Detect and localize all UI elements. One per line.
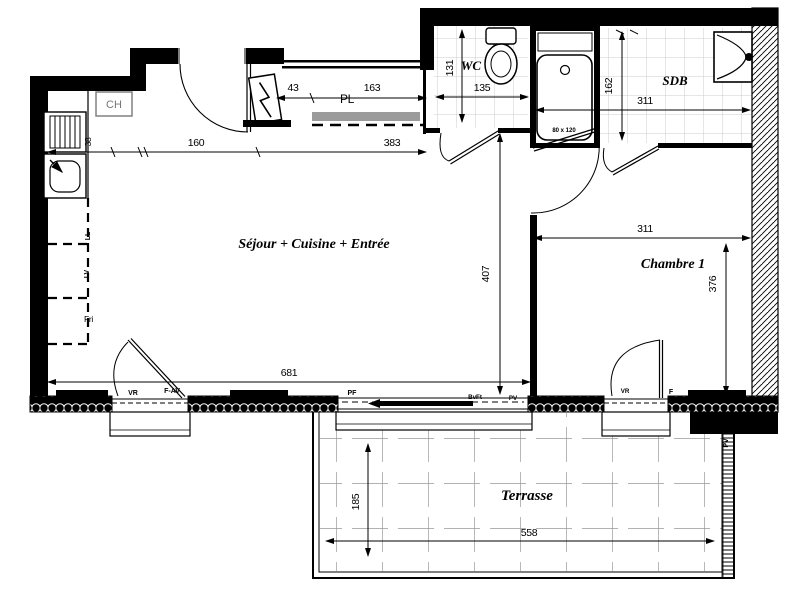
shower-top-wall bbox=[530, 26, 600, 31]
dim-558: 558 bbox=[521, 527, 538, 539]
floor-plan-canvas: Terrasse PV 558 185 bbox=[0, 0, 800, 600]
top-wall bbox=[420, 8, 778, 26]
toilet bbox=[485, 28, 517, 84]
radiator-sejour-left bbox=[56, 390, 108, 397]
terrace-label: Terrasse bbox=[501, 488, 553, 504]
chambre-door-swing bbox=[531, 130, 599, 213]
dim-407: 407 bbox=[480, 265, 492, 282]
dim-162: 162 bbox=[603, 77, 615, 94]
shower-right-wall bbox=[594, 26, 600, 148]
shower: 80 x 120 bbox=[537, 33, 592, 140]
closet-shelf bbox=[312, 112, 420, 121]
window-sejour-sill bbox=[110, 412, 190, 436]
window-sejour: VR F-AV bbox=[110, 339, 190, 437]
window-bedroom-type-label: F bbox=[669, 389, 674, 396]
shower-drain bbox=[561, 66, 570, 75]
shower-shelf bbox=[538, 33, 592, 51]
wc-bottom-wall-left bbox=[426, 128, 440, 133]
washbasin bbox=[714, 32, 753, 82]
wc-block-left-wall bbox=[420, 8, 434, 70]
dim-383: 383 bbox=[384, 137, 401, 149]
window-bedroom: VR F bbox=[602, 340, 674, 436]
sliding-panel bbox=[378, 401, 473, 406]
sejour-label: Séjour + Cuisine + Entrée bbox=[238, 237, 389, 252]
kitchen-top-wall bbox=[30, 76, 132, 91]
closet-sill-dark bbox=[243, 120, 291, 127]
cooktop bbox=[44, 112, 86, 152]
party-wall-hatched bbox=[752, 8, 778, 412]
window-bedroom-shutter-label: VR bbox=[621, 388, 630, 395]
dim-chambre-depth: 376 bbox=[707, 244, 726, 394]
terrace-screen-label: PV bbox=[723, 438, 730, 448]
sdb-door bbox=[603, 146, 659, 175]
water-heater-label: CH bbox=[106, 99, 122, 111]
entry-wall-left bbox=[130, 48, 178, 64]
window-bedroom-sill bbox=[602, 412, 670, 436]
radiators bbox=[56, 390, 746, 397]
window-sejour-shutter-label: VR bbox=[128, 390, 138, 397]
chambre-label: Chambre 1 bbox=[641, 257, 705, 272]
terrace: Terrasse PV 558 185 bbox=[313, 412, 734, 578]
window-sejour-type-label: F-AV bbox=[164, 388, 180, 395]
entrance-door bbox=[179, 48, 251, 132]
dim-kitchen-row: 38 160 383 bbox=[48, 137, 426, 157]
window-sejour-swing bbox=[114, 342, 128, 396]
shower-size-label: 80 x 120 bbox=[552, 128, 576, 134]
chambre-door bbox=[531, 128, 599, 213]
sdb-label: SDB bbox=[662, 73, 688, 88]
dim-sejour-width: 681 bbox=[48, 367, 530, 382]
radiator-sejour-mid bbox=[230, 390, 288, 397]
closet-back-wall-outer bbox=[282, 60, 426, 63]
floor-plan-drawing: Terrasse PV 558 185 bbox=[0, 0, 800, 600]
sliding-bay-window: PF BvFt PV bbox=[336, 390, 532, 430]
wc-label: WC bbox=[461, 58, 482, 73]
washer-label: LL bbox=[85, 231, 92, 240]
dim-376: 376 bbox=[707, 275, 719, 292]
dim-38: 38 bbox=[83, 137, 93, 146]
closet-label: PL bbox=[340, 92, 355, 106]
bottom-wall-seg2 bbox=[188, 396, 338, 412]
closet-back-wall-inner bbox=[282, 66, 426, 69]
kitchen-future-units bbox=[48, 198, 88, 344]
dim-160: 160 bbox=[188, 137, 205, 149]
bay-sill bbox=[336, 412, 532, 430]
bay-type-label: PF bbox=[348, 390, 358, 397]
bay-note-label: BvFt bbox=[468, 394, 482, 401]
kitchen: CH LL LV Fri bbox=[44, 91, 132, 344]
bottom-wall-seg1 bbox=[30, 396, 112, 412]
bottom-wall-seg4 bbox=[668, 396, 778, 412]
kitchen-sink bbox=[44, 154, 86, 198]
dim-311-sdb: 311 bbox=[637, 95, 653, 107]
sdb-door-swing bbox=[603, 148, 612, 172]
chambre-top-wall bbox=[658, 143, 752, 148]
washbasin-tap bbox=[745, 53, 753, 61]
bottom-wall-seg3 bbox=[528, 396, 604, 412]
entrance-door-swing bbox=[180, 64, 248, 132]
wc-bottom-wall-right bbox=[498, 128, 532, 133]
chambre-room: Chambre 1 311 376 bbox=[531, 128, 750, 394]
dim-163: 163 bbox=[364, 82, 381, 94]
fridge-label: Fri bbox=[84, 314, 93, 324]
wc-door-swing bbox=[440, 133, 449, 161]
dim-chambre-width: 311 bbox=[534, 223, 750, 238]
dim-135: 135 bbox=[474, 82, 491, 94]
sejour-room: Séjour + Cuisine + Entrée 407 38 160 383… bbox=[48, 134, 530, 394]
radiator-chambre bbox=[688, 390, 746, 397]
slide-direction-arrow bbox=[368, 399, 380, 408]
window-bedroom-swing bbox=[611, 340, 660, 396]
dim-131: 131 bbox=[444, 59, 456, 76]
dim-681: 681 bbox=[281, 367, 298, 379]
corner-block bbox=[690, 412, 778, 434]
sejour-chambre-partition bbox=[530, 215, 537, 396]
dim-311-chambre: 311 bbox=[637, 223, 653, 235]
terrace-railing bbox=[722, 434, 734, 578]
wc-door bbox=[440, 131, 500, 164]
dim-185: 185 bbox=[350, 493, 362, 510]
dishwasher-label: LV bbox=[84, 269, 91, 278]
bay-screen-label: PV bbox=[509, 395, 518, 402]
shower-left-wall bbox=[530, 26, 536, 148]
dim-hall-depth: 407 bbox=[480, 134, 500, 394]
electrical-panel bbox=[249, 74, 282, 124]
dim-43: 43 bbox=[287, 82, 299, 94]
entry-wall-right bbox=[246, 48, 284, 64]
